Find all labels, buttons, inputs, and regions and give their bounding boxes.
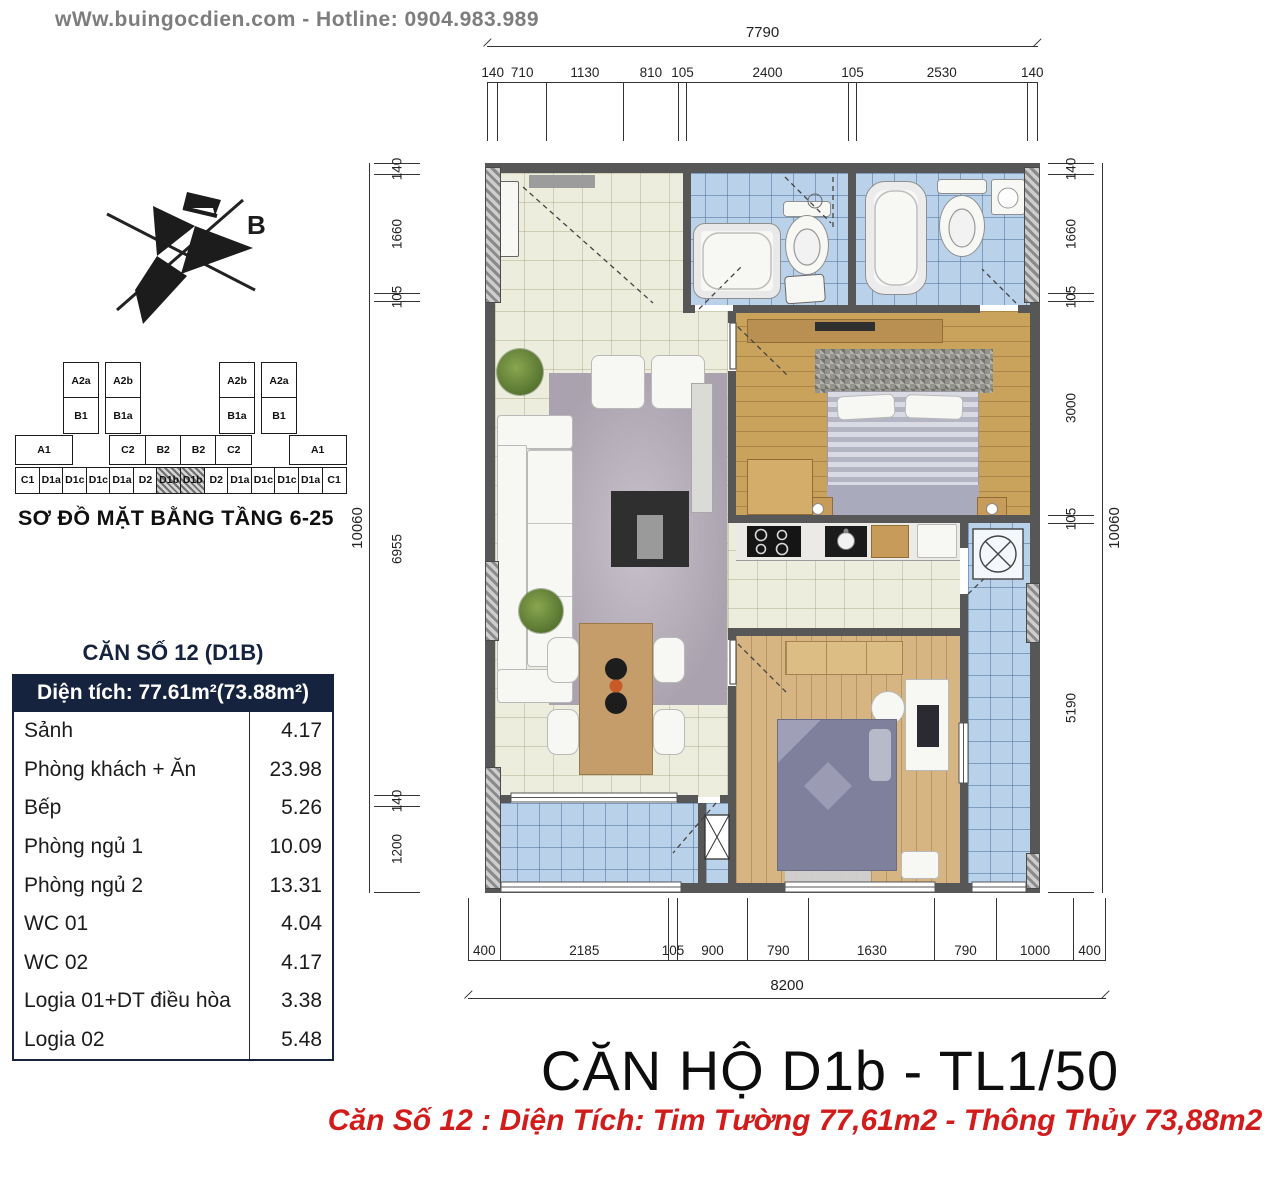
toilet-bowls — [794, 209, 975, 265]
dimension-left-total: 10060 — [344, 163, 374, 893]
key-plan-unit-B1: B1 — [261, 397, 297, 434]
mid-left-units: A1 — [15, 435, 71, 465]
dimension-segment: 140 — [374, 796, 420, 807]
room-area-value: 23.98 — [249, 751, 332, 790]
dimension-value: 810 — [640, 65, 663, 80]
dimension-left-segments: 140166010569551401200 — [374, 163, 420, 893]
area-table-row: Phòng ngủ 213.31 — [14, 866, 332, 905]
key-plan-unit-C2: C2 — [215, 435, 252, 465]
dimension-value: 2530 — [927, 65, 957, 80]
key-plan-unit-D1c: D1c — [251, 467, 276, 494]
tower-group-left: A2aB1A2bB1a — [63, 362, 141, 433]
door-leaves — [730, 323, 736, 684]
dimension-value-text: 2530 — [927, 65, 957, 80]
room-name: WC 01 — [14, 912, 249, 936]
compass-north-icon: B — [95, 172, 270, 332]
dimension-segment: 140 — [487, 83, 498, 141]
dimension-segment: 1660 — [374, 175, 420, 294]
dimension-value: 1000 — [1020, 943, 1050, 958]
dimension-bottom-segments: 400218510590079016307901000400 — [468, 898, 1106, 961]
dimension-value-text: 1130 — [570, 65, 599, 80]
dimension-total-value: 8200 — [765, 977, 808, 994]
dimension-segment: 105 — [679, 83, 687, 141]
dimension-top-total: 7790 — [487, 24, 1038, 60]
key-plan-unit-A2a: A2a — [63, 362, 99, 399]
sink-details — [838, 188, 1019, 550]
washing-machine-icon — [973, 529, 1023, 579]
key-plan-unit-C2: C2 — [109, 435, 146, 465]
dimension-segment: 105 — [374, 294, 420, 302]
dimension-value: 900 — [701, 943, 724, 958]
room-area-value: 4.17 — [249, 712, 332, 751]
room-area-value: 4.04 — [249, 905, 332, 944]
dimension-value: 1660 — [1064, 219, 1079, 249]
key-plan-unit-B1: B1 — [63, 397, 99, 434]
key-plan-unit-B1a: B1a — [105, 397, 141, 434]
apartment-subtitle: Căn Số 12 : Diện Tích: Tim Tường 77,61m2… — [320, 1104, 1270, 1138]
dimension-value: 140 — [390, 790, 405, 813]
dimension-segment: 2400 — [687, 83, 849, 141]
dimension-value-text: 6955 — [390, 533, 405, 563]
area-table-row: Logia 01+DT điều hòa3.38 — [14, 982, 332, 1021]
dimension-value: 105 — [1064, 508, 1079, 531]
key-plan-unit-D1a: D1a — [227, 467, 252, 494]
dimension-segment: 400 — [468, 898, 501, 960]
dimension-value: 3000 — [1064, 393, 1079, 423]
key-plan-unit-A1: A1 — [289, 435, 347, 465]
key-plan-tower-column: A2aB1 — [63, 362, 99, 433]
dimension-right-total: 10060 — [1094, 163, 1124, 893]
key-plan-unit-C1: C1 — [15, 467, 40, 494]
area-table-row: WC 024.17 — [14, 944, 332, 983]
page: wWw.buingocdien.com - Hotline: 0904.983.… — [0, 0, 1276, 1200]
area-table-title: CĂN SỐ 12 (D1B) — [12, 640, 334, 666]
room-name: Logia 01+DT điều hòa — [14, 989, 249, 1013]
dimension-segment: 140 — [374, 163, 420, 175]
area-table-body: Sảnh4.17Phòng khách + Ăn23.98Bếp5.26Phòn… — [12, 712, 334, 1061]
dimension-segment: 2530 — [857, 83, 1028, 141]
area-table-row: WC 014.04 — [14, 905, 332, 944]
room-name: Sảnh — [14, 719, 249, 743]
dimension-segment: 810 — [624, 83, 679, 141]
key-plan-tower-column: A2aB1 — [261, 362, 297, 433]
dimension-value: 140 — [481, 65, 504, 80]
dimension-value: 2185 — [569, 943, 599, 958]
dimension-line — [487, 46, 1038, 47]
room-area-value: 3.38 — [249, 982, 332, 1021]
key-plan-unit-C1: C1 — [322, 467, 347, 494]
room-name: Logia 02 — [14, 1028, 249, 1052]
dimension-segment: 105 — [849, 83, 857, 141]
dimension-value: 105 — [671, 65, 694, 80]
shower-head-icon — [808, 194, 822, 208]
key-plan-unit-D1c: D1c — [62, 467, 87, 494]
dimension-value-text: 1200 — [390, 834, 405, 864]
dimension-value: 790 — [767, 943, 790, 958]
dimension-segment: 3000 — [1048, 302, 1094, 516]
dimension-line — [369, 163, 370, 893]
area-table-row: Bếp5.26 — [14, 789, 332, 828]
room-name: WC 02 — [14, 951, 249, 975]
key-plan-towers-row: A2aB1A2bB1a A2bB1aA2aB1 — [15, 362, 345, 433]
dimension-value: 140 — [1021, 65, 1044, 80]
room-area-value: 4.17 — [249, 944, 332, 983]
key-plan-unit-A2a: A2a — [261, 362, 297, 399]
dimension-bottom-total: 8200 — [468, 977, 1106, 1011]
dimension-value-text: 1660 — [390, 219, 405, 249]
dimension-value: 105 — [390, 286, 405, 309]
compass-north-label: B — [247, 210, 266, 240]
dimension-segment: 1000 — [997, 898, 1075, 960]
dimension-segment: 6955 — [374, 302, 420, 796]
dimension-value: 5190 — [1064, 693, 1079, 723]
dimension-segment: 900 — [678, 898, 748, 960]
dimension-segment: 1660 — [1048, 175, 1094, 294]
room-area-value: 5.26 — [249, 789, 332, 828]
dimension-value-text: 105 — [841, 65, 864, 80]
dimension-value: 710 — [511, 65, 534, 80]
dimension-value-text: 2400 — [752, 65, 782, 80]
dimension-total-value: 10060 — [349, 503, 366, 553]
key-plan-unit-B2: B2 — [145, 435, 182, 465]
dimension-segment: 105 — [1048, 516, 1094, 524]
dimension-segment: 1130 — [547, 83, 624, 141]
key-plan-title: SƠ ĐỒ MẶT BẰNG TẦNG 6-25 — [18, 506, 334, 531]
floor-plan — [485, 163, 1040, 893]
apartment-title: CĂN HỘ D1b - TL1/50 — [370, 1038, 1276, 1103]
dimension-value-text: 400 — [473, 943, 496, 958]
dimension-value: 790 — [954, 943, 977, 958]
room-name: Phòng khách + Ăn — [14, 758, 249, 782]
window-symbols — [501, 723, 1026, 892]
dimension-segment: 790 — [748, 898, 810, 960]
dimension-segment: 105 — [669, 898, 678, 960]
dimension-value: 400 — [1078, 943, 1101, 958]
dimension-value: 2400 — [752, 65, 782, 80]
nightstand-knobs — [813, 504, 998, 515]
dimension-value-text: 5190 — [1064, 693, 1079, 723]
area-table-row: Sảnh4.17 — [14, 712, 332, 751]
dimension-value-text: 810 — [640, 65, 663, 80]
dimension-value: 1660 — [390, 219, 405, 249]
dimension-segment: 1200 — [374, 807, 420, 893]
dimension-segment: 5190 — [1048, 524, 1094, 893]
dimension-line — [468, 998, 1106, 999]
room-name: Bếp — [14, 796, 249, 820]
dimension-value-text: 900 — [701, 943, 724, 958]
dimension-segment: 140 — [1028, 83, 1038, 141]
mid-right-units: A1 — [289, 435, 345, 465]
dimension-value: 105 — [662, 943, 685, 958]
dimension-value-text: 400 — [1078, 943, 1101, 958]
key-plan-unit-D2: D2 — [204, 467, 229, 494]
dimension-total-value: 10060 — [1106, 503, 1123, 553]
dimension-value-text: 105 — [671, 65, 694, 80]
key-plan-unit-A2b: A2b — [105, 362, 141, 399]
dimension-value-text: 105 — [1064, 286, 1079, 309]
dimension-value: 6955 — [390, 533, 405, 563]
plan-line-details — [485, 163, 1040, 893]
dimension-value-text: 1630 — [857, 943, 887, 958]
dimension-value-text: 2185 — [569, 943, 599, 958]
dimension-value: 140 — [390, 158, 405, 181]
dimension-value: 1630 — [857, 943, 887, 958]
key-plan-unit-D1c: D1c — [274, 467, 299, 494]
dimension-total-value: 7790 — [741, 24, 784, 41]
dimension-segment: 400 — [1074, 898, 1106, 960]
dimension-value-text: 140 — [390, 790, 405, 813]
dimension-top: 7790 140710113081010524001052530140 — [487, 24, 1038, 141]
dimension-segment: 140 — [1048, 163, 1094, 175]
key-plan-unit-D1a: D1a — [109, 467, 134, 494]
dimension-value-text: 3000 — [1064, 393, 1079, 423]
key-plan-unit-D1a: D1a — [39, 467, 64, 494]
dimension-value: 140 — [1064, 158, 1079, 181]
dimension-segment: 105 — [1048, 294, 1094, 302]
dimension-value-text: 105 — [1064, 508, 1079, 531]
dimension-value-text: 790 — [767, 943, 790, 958]
dimension-value-text: 140 — [1021, 65, 1044, 80]
room-area-value: 10.09 — [249, 828, 332, 867]
room-name: Phòng ngủ 2 — [14, 874, 249, 898]
area-table-row: Phòng ngủ 110.09 — [14, 828, 332, 867]
key-plan-unit-D1b: D1b — [180, 467, 205, 494]
key-plan-mid-row: A1 C2B2B2C2 A1 — [15, 435, 345, 465]
dimension-value: 400 — [473, 943, 496, 958]
key-plan-unit-D1c: D1c — [86, 467, 111, 494]
key-plan-unit-D1b: D1b — [156, 467, 181, 494]
dimension-value-text: 140 — [1064, 158, 1079, 181]
key-plan-unit-D2: D2 — [133, 467, 158, 494]
dimension-segment: 790 — [935, 898, 997, 960]
key-plan-unit-A2b: A2b — [219, 362, 255, 399]
dimension-value-text: 105 — [390, 286, 405, 309]
dimension-value-text: 710 — [511, 65, 534, 80]
mid-center-units: C2B2B2C2 — [109, 435, 250, 465]
dimension-value: 1200 — [390, 834, 405, 864]
dimension-top-segments: 140710113081010524001052530140 — [487, 82, 1038, 141]
dimension-left: 10060 140166010569551401200 — [344, 163, 420, 893]
room-name: Phòng ngủ 1 — [14, 835, 249, 859]
dimension-value-text: 790 — [954, 943, 977, 958]
key-plan-unit-B1a: B1a — [219, 397, 255, 434]
area-table-row: Logia 025.48 — [14, 1021, 332, 1060]
dimension-value-text: 1660 — [1064, 219, 1079, 249]
area-table: CĂN SỐ 12 (D1B) Diện tích: 77.61m²(73.88… — [12, 640, 334, 1061]
key-plan-unit-B2: B2 — [180, 435, 217, 465]
room-area-value: 13.31 — [249, 866, 332, 905]
key-plan-bottom-row: C1D1aD1cD1cD1aD2D1bD1bD2D1aD1cD1cD1aC1 — [15, 467, 345, 494]
dimension-right-segments: 140166010530001055190 — [1048, 163, 1094, 893]
dimension-value: 105 — [841, 65, 864, 80]
area-table-row: Phòng khách + Ăn23.98 — [14, 751, 332, 790]
key-plan-unit-D1a: D1a — [298, 467, 323, 494]
building-key-plan: A2aB1A2bB1a A2bB1aA2aB1 A1 C2B2B2C2 A1 C… — [15, 362, 345, 494]
dimension-segment: 1630 — [809, 898, 935, 960]
key-plan-tower-column: A2bB1a — [219, 362, 255, 433]
dimension-bottom: 400218510590079016307901000400 8200 — [468, 898, 1106, 1011]
dimension-segment: 710 — [498, 83, 547, 141]
dimension-value-text: 140 — [390, 158, 405, 181]
dimension-value-text: 1000 — [1020, 943, 1050, 958]
key-plan-unit-A1: A1 — [15, 435, 73, 465]
room-area-value: 5.48 — [249, 1021, 332, 1060]
dimension-value: 1130 — [570, 65, 599, 80]
dining-plates — [605, 658, 627, 714]
dimension-line — [1102, 163, 1103, 893]
website-hotline-text: wWw.buingocdien.com - Hotline: 0904.983.… — [55, 8, 539, 32]
ac-unit-icon — [705, 815, 729, 859]
cooktop-burners — [756, 530, 788, 555]
key-plan-tower-column: A2bB1a — [105, 362, 141, 433]
dimension-value: 105 — [1064, 286, 1079, 309]
dimension-value-text: 105 — [662, 943, 685, 958]
area-table-header: Diện tích: 77.61m²(73.88m²) — [12, 674, 334, 712]
tower-group-right: A2bB1aA2aB1 — [219, 362, 297, 433]
dimension-right: 140166010530001055190 10060 — [1048, 163, 1124, 893]
dimension-segment: 2185 — [501, 898, 669, 960]
dimension-value-text: 140 — [481, 65, 504, 80]
